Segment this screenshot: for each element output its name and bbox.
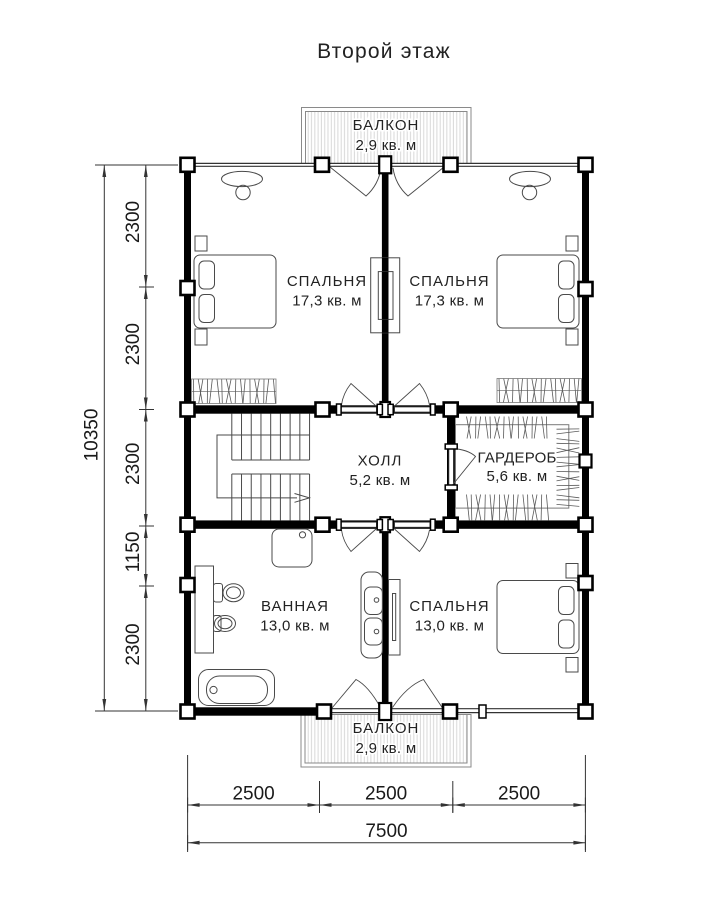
svg-text:ВАННАЯ: ВАННАЯ <box>261 598 329 615</box>
svg-text:13,0 кв. м: 13,0 кв. м <box>260 618 330 635</box>
svg-text:17,3 кв. м: 17,3 кв. м <box>415 293 485 310</box>
svg-text:2300: 2300 <box>123 323 144 365</box>
svg-text:5,2 кв. м: 5,2 кв. м <box>350 472 411 489</box>
svg-text:13,0 кв. м: 13,0 кв. м <box>415 618 485 635</box>
svg-text:2500: 2500 <box>232 784 274 805</box>
svg-text:2300: 2300 <box>123 201 144 243</box>
svg-text:Второй этаж: Второй этаж <box>317 40 451 63</box>
svg-text:2,9 кв. м: 2,9 кв. м <box>356 740 417 757</box>
svg-text:СПАЛЬНЯ: СПАЛЬНЯ <box>409 273 489 290</box>
svg-text:СПАЛЬНЯ: СПАЛЬНЯ <box>409 598 489 615</box>
svg-text:2500: 2500 <box>365 784 407 805</box>
svg-text:ХОЛЛ: ХОЛЛ <box>358 453 403 470</box>
svg-text:БАЛКОН: БАЛКОН <box>353 720 420 737</box>
svg-text:2,9 кв. м: 2,9 кв. м <box>356 137 417 154</box>
svg-text:10350: 10350 <box>82 409 103 462</box>
svg-text:1150: 1150 <box>123 532 144 573</box>
svg-text:2300: 2300 <box>123 623 144 665</box>
svg-text:17,3 кв. м: 17,3 кв. м <box>292 293 362 310</box>
svg-text:7500: 7500 <box>365 821 407 842</box>
svg-text:5,6 кв. м: 5,6 кв. м <box>487 468 548 485</box>
svg-text:СПАЛЬНЯ: СПАЛЬНЯ <box>287 273 367 290</box>
svg-text:2500: 2500 <box>498 784 540 805</box>
svg-text:2300: 2300 <box>123 443 144 485</box>
svg-text:БАЛКОН: БАЛКОН <box>353 117 420 134</box>
svg-text:ГАРДЕРОБ: ГАРДЕРОБ <box>477 450 556 467</box>
